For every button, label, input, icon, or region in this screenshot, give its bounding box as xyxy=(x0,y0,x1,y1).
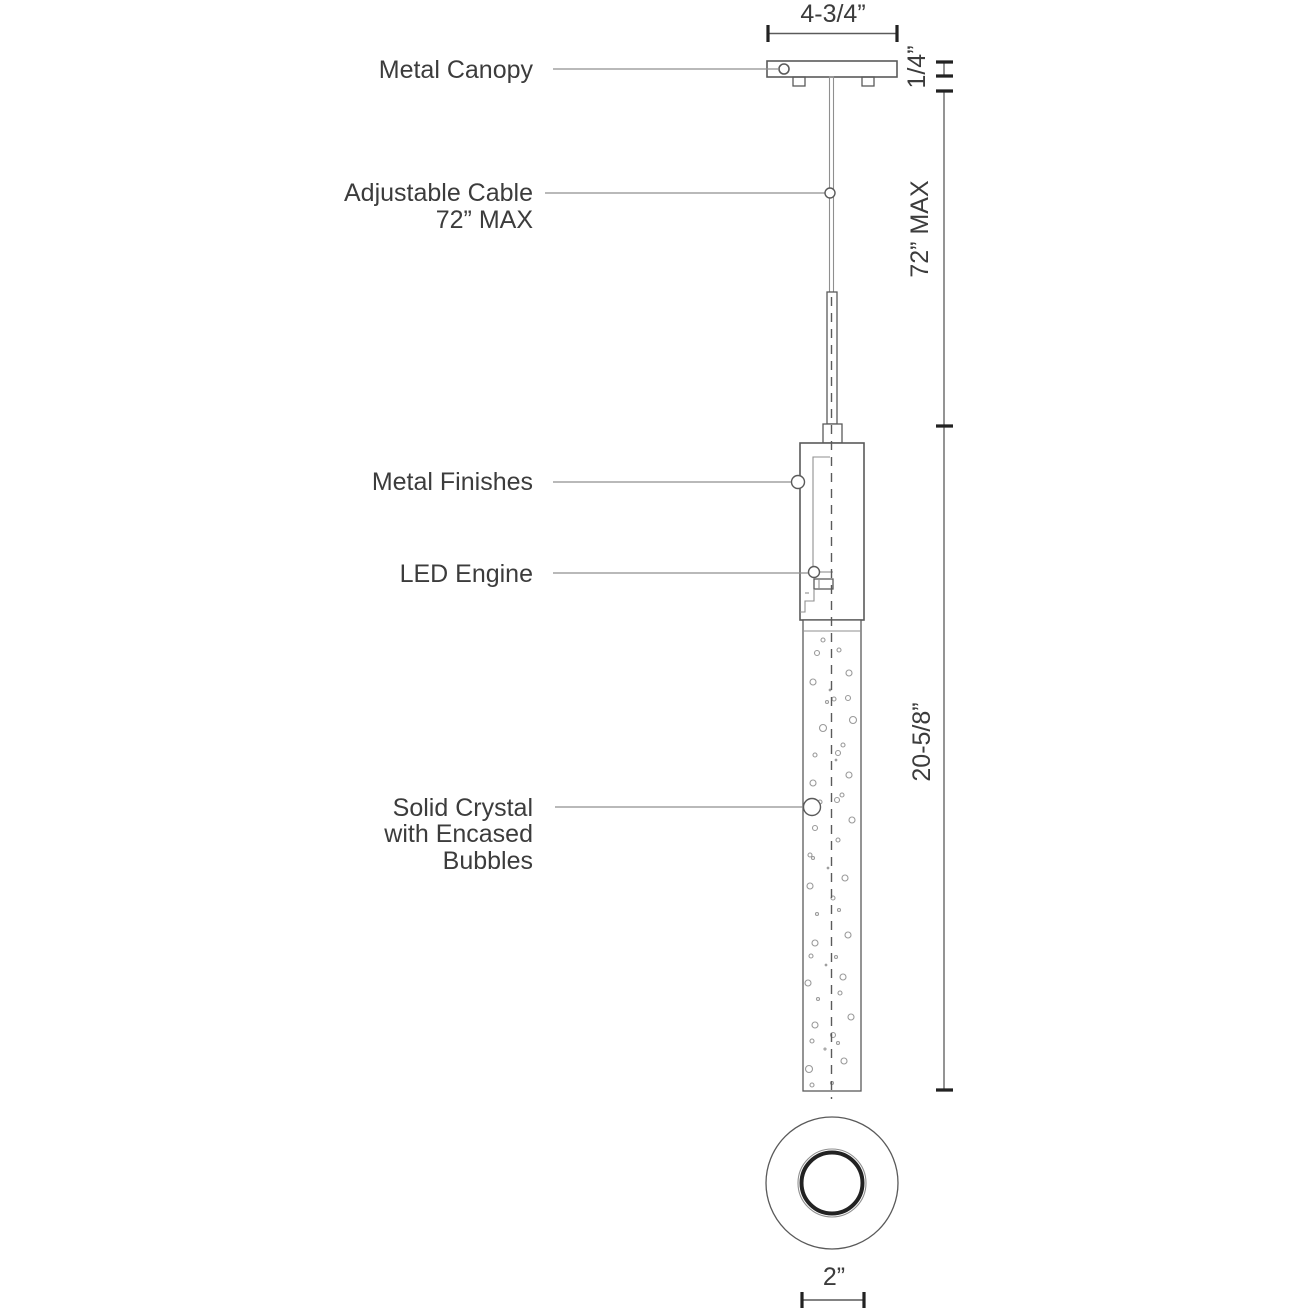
diffuser-diameter-value: 2” xyxy=(823,1263,845,1291)
canopy-screw-hole xyxy=(779,64,789,74)
bottom-view-outer-circle xyxy=(766,1117,898,1249)
leader-lines xyxy=(545,69,835,816)
canopy-thickness-value: 1/4” xyxy=(903,45,931,88)
solid-crystal-point xyxy=(804,799,821,816)
technical-drawing: 4-3/4” xyxy=(0,0,1312,1312)
canopy-tab xyxy=(862,77,874,86)
callout-labels: Metal Canopy Adjustable Cable 72” MAX Me… xyxy=(344,56,534,875)
stem-rod xyxy=(827,292,837,424)
bottom-view-diffuser-ring xyxy=(802,1153,863,1214)
solid-crystal-label-line3: Bubbles xyxy=(443,847,533,875)
adjustable-cable-label-line2: 72” MAX xyxy=(436,206,534,234)
fixture-height-value: 20-5/8” xyxy=(908,702,936,781)
right-dimensions: 1/4” 72” MAX 20-5/8” xyxy=(903,45,953,1090)
suspension-cable xyxy=(830,77,834,292)
canopy-width-dimension: 4-3/4” xyxy=(768,0,897,42)
bottom-view-ring-outline xyxy=(798,1149,866,1217)
metal-finishes-label: Metal Finishes xyxy=(372,468,533,496)
adjustable-cable-point xyxy=(825,188,835,198)
spec-sheet-page: 4-3/4” xyxy=(0,0,1312,1312)
solid-crystal-label-line1: Solid Crystal xyxy=(393,794,533,822)
led-engine-label: LED Engine xyxy=(400,560,533,588)
solid-crystal-label-line2: with Encased xyxy=(383,820,533,848)
metal-finishes-point xyxy=(792,476,805,489)
metal-canopy-label: Metal Canopy xyxy=(379,56,534,84)
adjustable-cable-label-line1: Adjustable Cable xyxy=(344,179,533,207)
metal-canopy-drawing xyxy=(767,61,897,86)
canopy-width-value: 4-3/4” xyxy=(800,0,865,28)
led-engine-point xyxy=(809,567,820,578)
max-drop-value: 72” MAX xyxy=(906,180,934,278)
cable-connector xyxy=(823,424,842,443)
canopy-tab xyxy=(793,77,805,86)
bottom-view: 2” xyxy=(766,1117,898,1308)
